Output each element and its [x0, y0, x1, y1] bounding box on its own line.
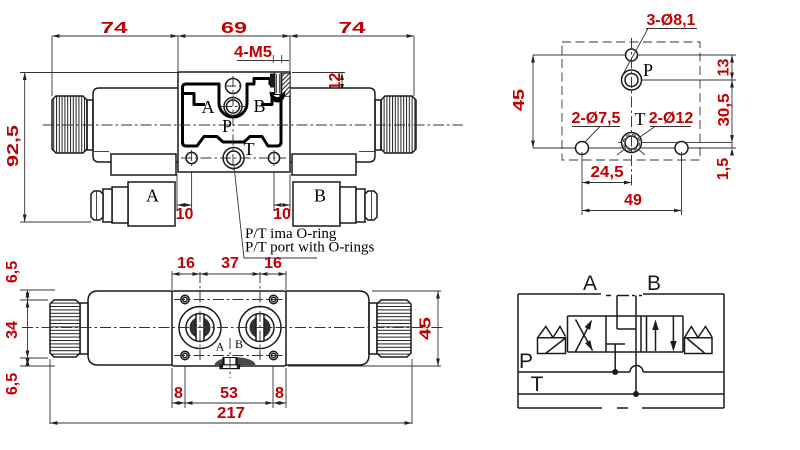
svg-text:B: B	[647, 272, 661, 295]
svg-text:T: T	[244, 139, 255, 159]
svg-text:34: 34	[4, 321, 21, 339]
svg-text:P: P	[222, 116, 232, 136]
svg-text:74: 74	[339, 20, 366, 37]
svg-text:B: B	[253, 96, 265, 116]
svg-text:217: 217	[217, 405, 245, 422]
svg-text:8: 8	[174, 385, 183, 402]
svg-text:A: A	[202, 97, 215, 117]
svg-text:30,5: 30,5	[716, 93, 733, 126]
svg-text:92,5: 92,5	[5, 125, 22, 167]
svg-text:37: 37	[221, 255, 239, 272]
svg-text:16: 16	[177, 255, 195, 272]
svg-text:10: 10	[176, 206, 194, 223]
svg-text:3-Ø8,1: 3-Ø8,1	[647, 12, 696, 29]
svg-text:45: 45	[511, 89, 528, 111]
svg-text:74: 74	[101, 20, 128, 37]
svg-text:T: T	[635, 109, 646, 129]
svg-text:A: A	[146, 186, 159, 206]
svg-text:P/T port with O-rings: P/T port with O-rings	[245, 240, 374, 256]
svg-text:24,5: 24,5	[591, 164, 624, 181]
svg-text:P: P	[643, 60, 653, 80]
svg-text:4-M5: 4-M5	[234, 44, 272, 61]
svg-text:69: 69	[221, 20, 247, 37]
svg-text:8: 8	[275, 385, 284, 402]
svg-text:6,5: 6,5	[4, 373, 21, 395]
svg-text:T: T	[531, 373, 544, 396]
svg-text:2-Ø7,5: 2-Ø7,5	[572, 110, 621, 127]
svg-text:16: 16	[264, 255, 282, 272]
svg-text:A: A	[216, 340, 225, 354]
svg-text:45: 45	[418, 317, 435, 340]
svg-text:53: 53	[220, 385, 238, 402]
svg-text:10: 10	[273, 206, 291, 223]
svg-text:2-Ø12: 2-Ø12	[649, 110, 694, 127]
svg-text:49: 49	[624, 192, 642, 209]
svg-text:B: B	[314, 186, 326, 206]
svg-text:1,5: 1,5	[715, 158, 732, 180]
svg-text:13: 13	[716, 59, 733, 77]
svg-text:A: A	[583, 272, 597, 295]
svg-text:P: P	[519, 350, 533, 373]
svg-text:B: B	[235, 337, 243, 351]
svg-text:6,5: 6,5	[4, 261, 21, 283]
